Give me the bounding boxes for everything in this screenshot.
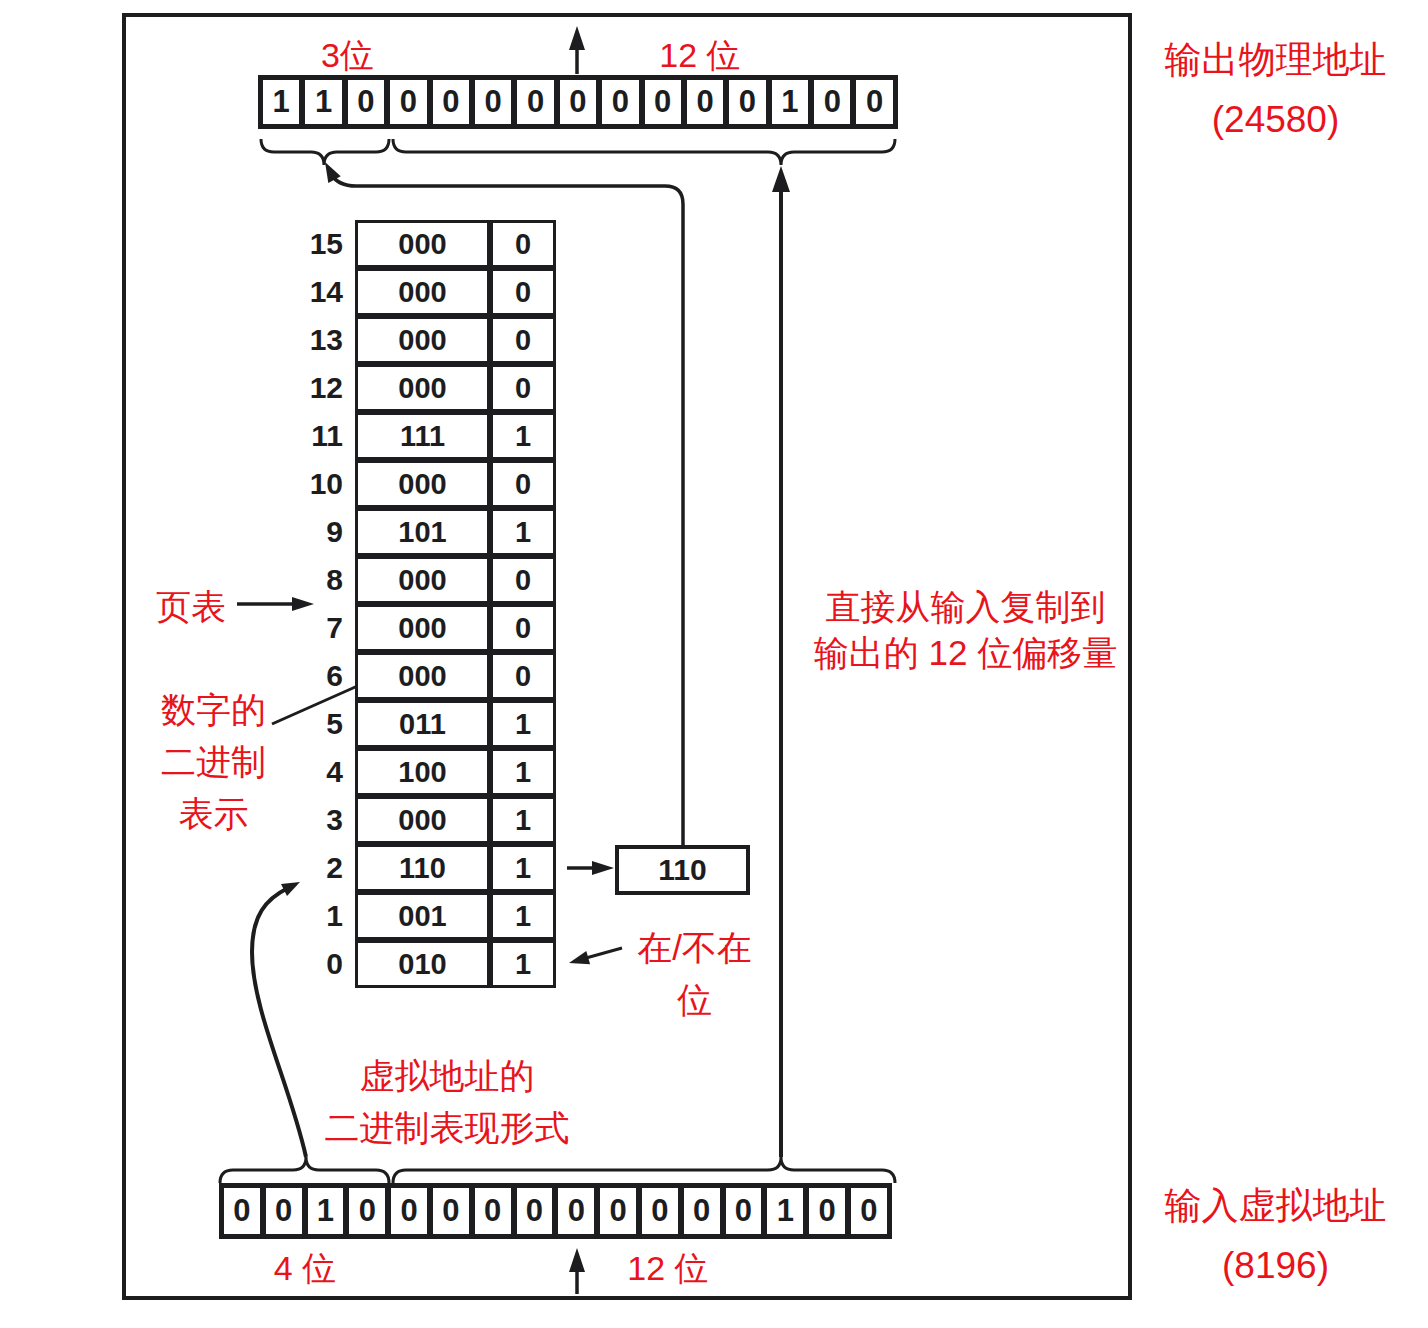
output-bit-cell: 0 — [514, 77, 556, 127]
present-bit-cell: 0 — [490, 652, 556, 700]
output-bit-cell: 0 — [387, 77, 429, 127]
present-bit-cell: 1 — [490, 508, 556, 556]
page-table: 15 000 0 14 000 0 13 000 0 12 000 0 — [270, 220, 556, 988]
page-table-row: 5 011 1 — [270, 700, 556, 748]
present-bit-cell: 1 — [490, 700, 556, 748]
input-bit-cell: 0 — [263, 1185, 305, 1237]
present-bit-cell: 0 — [490, 220, 556, 268]
present-bit-cell: 1 — [490, 892, 556, 940]
present-bit-cell: 0 — [490, 364, 556, 412]
input-bit-cell: 0 — [848, 1185, 890, 1237]
input-bit-array: 0 0 1 0 0 0 0 0 0 0 0 0 0 1 0 0 — [219, 1183, 892, 1239]
offset-copy-line2: 输出的 12 位偏移量 — [798, 630, 1133, 676]
binary-of-number-label: 数字的 二进制 表示 — [146, 684, 281, 840]
frame-value-cell: 000 — [355, 220, 490, 268]
page-table-row: 14 000 0 — [270, 268, 556, 316]
frame-value-cell: 100 — [355, 748, 490, 796]
frame-value-cell: 011 — [355, 700, 490, 748]
input-bit-cell: 0 — [555, 1185, 597, 1237]
page-index-label: 2 — [270, 844, 355, 892]
output-low-bits-label: 12 位 — [640, 33, 760, 79]
input-bit-cell: 0 — [472, 1185, 514, 1237]
present-bit-cell: 1 — [490, 412, 556, 460]
output-bit-cell: 0 — [430, 77, 472, 127]
page-table-row: 11 111 1 — [270, 412, 556, 460]
page-table-row: 13 000 0 — [270, 316, 556, 364]
input-address-value: (8196) — [1148, 1236, 1403, 1296]
page-table-row: 1 001 1 — [270, 892, 556, 940]
input-bit-cell: 0 — [639, 1185, 681, 1237]
input-low-bits-label: 12 位 — [608, 1246, 728, 1292]
input-bit-cell: 0 — [723, 1185, 765, 1237]
page-index-label: 6 — [270, 652, 355, 700]
input-bit-cell: 0 — [221, 1185, 263, 1237]
input-bit-cell: 0 — [597, 1185, 639, 1237]
output-bit-cell: 1 — [769, 77, 811, 127]
frame-value-cell: 111 — [355, 412, 490, 460]
input-bit-cell: 0 — [346, 1185, 388, 1237]
input-bit-cell: 1 — [764, 1185, 806, 1237]
binary-of-number-line1: 数字的 — [146, 684, 281, 736]
frame-value-cell: 000 — [355, 268, 490, 316]
present-bit-cell: 0 — [490, 460, 556, 508]
present-absent-label: 在/不在 位 — [612, 922, 777, 1026]
page-index-label: 10 — [270, 460, 355, 508]
frame-value-cell: 000 — [355, 316, 490, 364]
present-bit-cell: 1 — [490, 940, 556, 988]
frame-value-cell: 000 — [355, 364, 490, 412]
page-table-row: 2 110 1 — [270, 844, 556, 892]
input-bit-cell: 0 — [388, 1185, 430, 1237]
page-index-label: 8 — [270, 556, 355, 604]
offset-copy-label: 直接从输入复制到 输出的 12 位偏移量 — [798, 584, 1133, 676]
mmu-translation-figure: 1 1 0 0 0 0 0 0 0 0 0 0 1 0 0 — [0, 0, 1428, 1328]
page-index-label: 11 — [270, 412, 355, 460]
output-address-title-text: 输出物理地址 — [1148, 30, 1403, 90]
present-bit-cell: 0 — [490, 556, 556, 604]
page-index-label: 5 — [270, 700, 355, 748]
frame-value-cell: 001 — [355, 892, 490, 940]
frame-value-cell: 000 — [355, 652, 490, 700]
page-table-row: 9 101 1 — [270, 508, 556, 556]
page-index-label: 3 — [270, 796, 355, 844]
page-index-label: 14 — [270, 268, 355, 316]
present-absent-line1: 在/不在 — [612, 922, 777, 974]
page-table-row: 15 000 0 — [270, 220, 556, 268]
output-address-title: 输出物理地址 (24580) — [1148, 30, 1403, 150]
frame-value-cell: 000 — [355, 460, 490, 508]
page-index-label: 4 — [270, 748, 355, 796]
input-bit-cell: 0 — [514, 1185, 556, 1237]
page-table-row: 3 000 1 — [270, 796, 556, 844]
page-table-row: 0 010 1 — [270, 940, 556, 988]
input-bit-cell: 0 — [806, 1185, 848, 1237]
output-high-bits-label: 3位 — [300, 33, 395, 79]
frame-value-cell: 000 — [355, 604, 490, 652]
frame-number-box: 110 — [615, 845, 750, 895]
input-bit-cell: 0 — [681, 1185, 723, 1237]
frame-value-cell: 000 — [355, 796, 490, 844]
output-bit-cell: 0 — [345, 77, 387, 127]
present-bit-cell: 1 — [490, 748, 556, 796]
output-address-value: (24580) — [1148, 90, 1403, 150]
present-bit-cell: 0 — [490, 268, 556, 316]
output-bit-cell: 1 — [302, 77, 344, 127]
output-bit-cell: 0 — [811, 77, 853, 127]
present-bit-cell: 0 — [490, 604, 556, 652]
page-table-row: 6 000 0 — [270, 652, 556, 700]
output-bit-cell: 0 — [684, 77, 726, 127]
present-absent-line2: 位 — [612, 974, 777, 1026]
page-index-label: 7 — [270, 604, 355, 652]
present-bit-cell: 1 — [490, 844, 556, 892]
virtual-binary-label: 虚拟地址的 二进制表现形式 — [282, 1050, 612, 1154]
input-bit-cell: 1 — [305, 1185, 347, 1237]
frame-value-cell: 101 — [355, 508, 490, 556]
present-bit-cell: 1 — [490, 796, 556, 844]
page-index-label: 12 — [270, 364, 355, 412]
page-index-label: 13 — [270, 316, 355, 364]
frame-value-cell: 110 — [355, 844, 490, 892]
binary-of-number-line3: 表示 — [146, 788, 281, 840]
output-bit-cell: 0 — [557, 77, 599, 127]
page-index-label: 1 — [270, 892, 355, 940]
page-table-row: 7 000 0 — [270, 604, 556, 652]
page-table-row: 10 000 0 — [270, 460, 556, 508]
output-bit-cell: 0 — [472, 77, 514, 127]
page-index-label: 9 — [270, 508, 355, 556]
output-bit-cell: 0 — [599, 77, 641, 127]
page-index-label: 0 — [270, 940, 355, 988]
binary-of-number-line2: 二进制 — [146, 736, 281, 788]
page-table-label: 页表 — [146, 582, 236, 632]
output-bit-cell: 0 — [726, 77, 768, 127]
page-table-row: 8 000 0 — [270, 556, 556, 604]
present-bit-cell: 0 — [490, 316, 556, 364]
output-bit-cell: 1 — [260, 77, 302, 127]
page-index-label: 15 — [270, 220, 355, 268]
input-high-bits-label: 4 位 — [250, 1246, 360, 1292]
input-address-title: 输入虚拟地址 (8196) — [1148, 1176, 1403, 1296]
output-bit-cell: 0 — [642, 77, 684, 127]
input-bit-cell: 0 — [430, 1185, 472, 1237]
virtual-binary-line2: 二进制表现形式 — [282, 1102, 612, 1154]
input-address-title-text: 输入虚拟地址 — [1148, 1176, 1403, 1236]
output-bit-cell: 0 — [853, 77, 895, 127]
output-bit-array: 1 1 0 0 0 0 0 0 0 0 0 0 1 0 0 — [258, 75, 898, 129]
offset-copy-line1: 直接从输入复制到 — [798, 584, 1133, 630]
frame-value-cell: 010 — [355, 940, 490, 988]
page-table-row: 12 000 0 — [270, 364, 556, 412]
virtual-binary-line1: 虚拟地址的 — [282, 1050, 612, 1102]
page-table-row: 4 100 1 — [270, 748, 556, 796]
frame-value-cell: 000 — [355, 556, 490, 604]
